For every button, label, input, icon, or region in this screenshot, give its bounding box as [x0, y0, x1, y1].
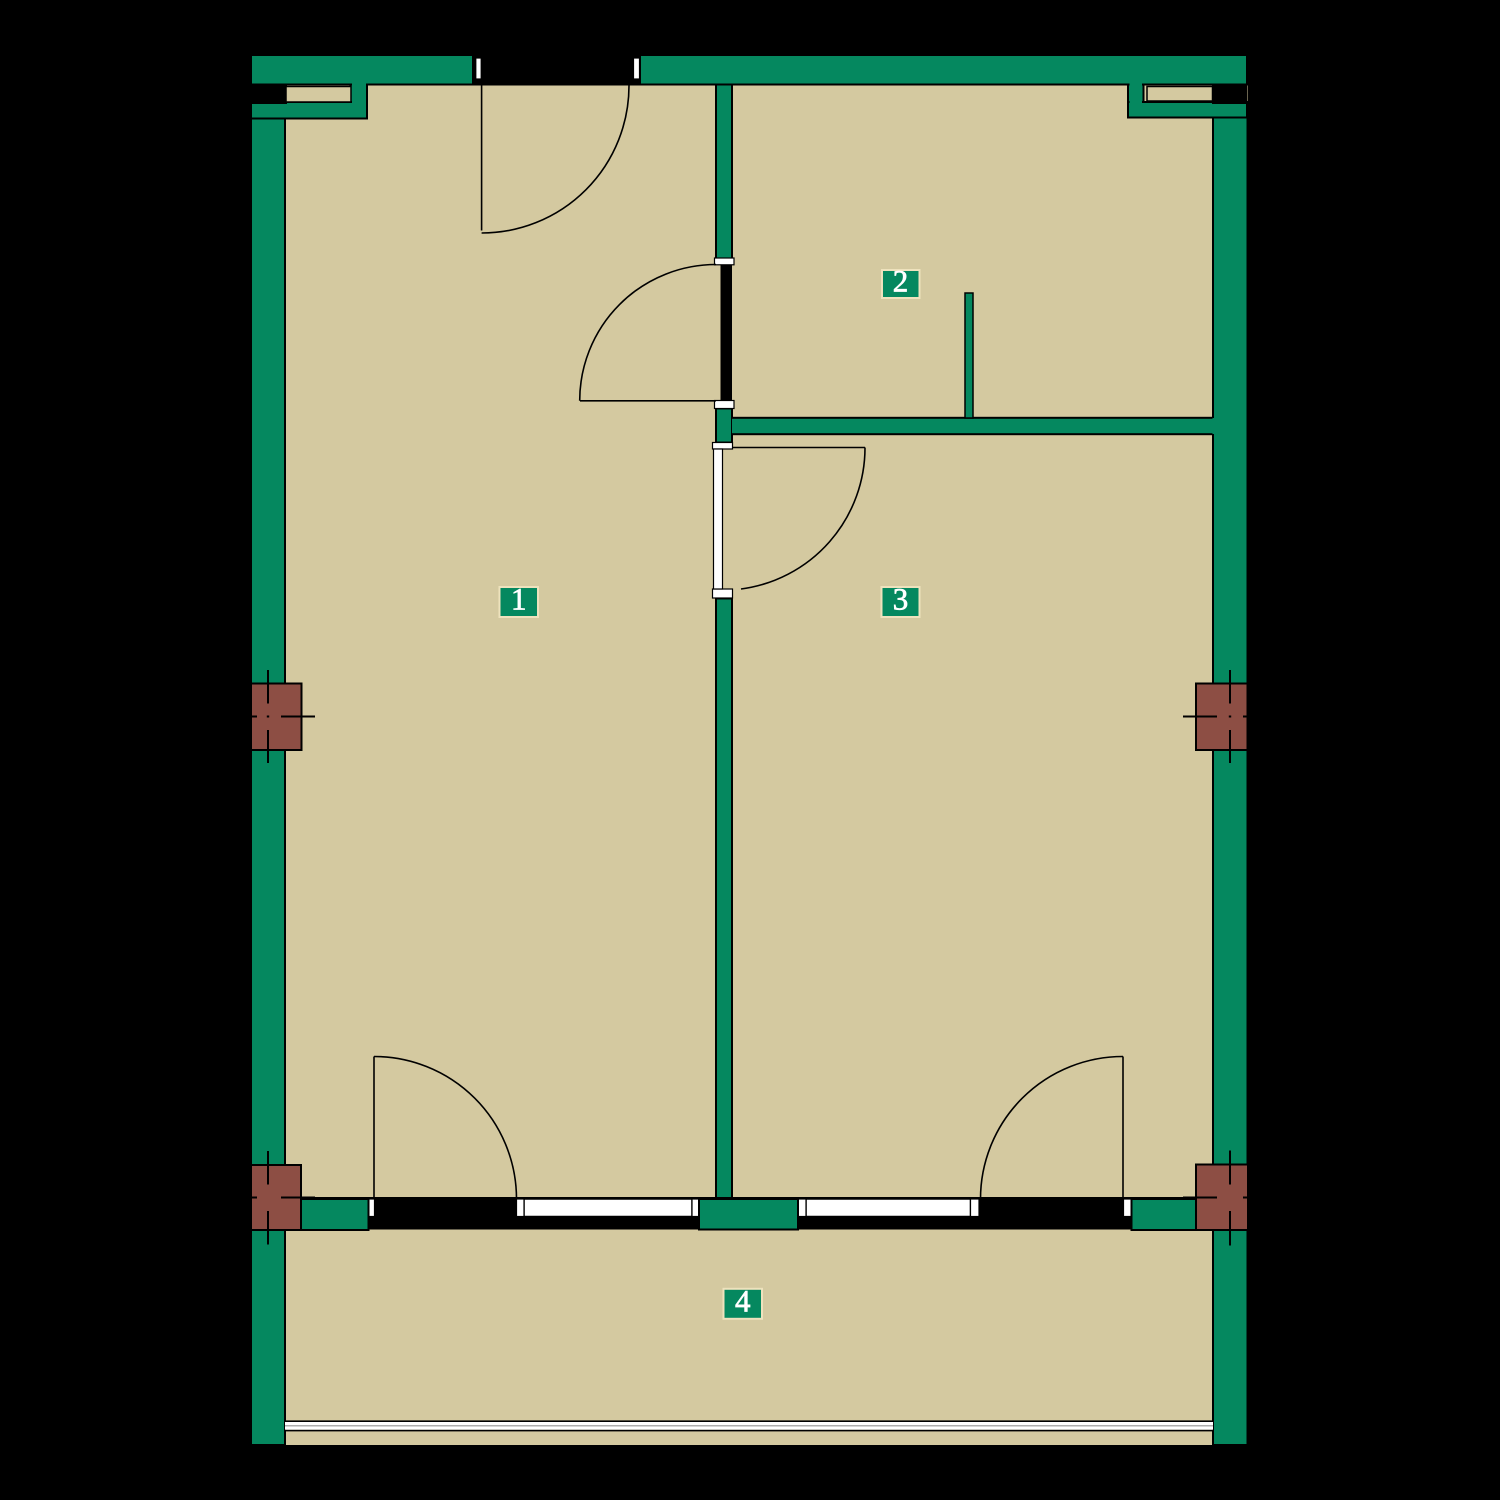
svg-text:1: 1	[511, 582, 527, 617]
svg-text:2: 2	[893, 264, 909, 299]
svg-text:4: 4	[735, 1283, 751, 1318]
svg-text:3: 3	[893, 582, 909, 617]
